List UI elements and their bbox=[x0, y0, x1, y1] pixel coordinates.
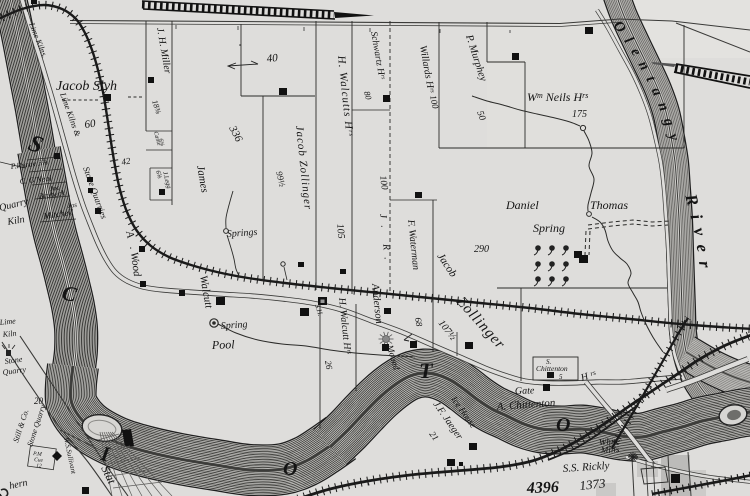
svg-text:12: 12 bbox=[36, 463, 42, 470]
svg-text:T: T bbox=[419, 358, 434, 383]
svg-text:Mills: Mills bbox=[600, 444, 620, 455]
svg-text:100: 100 bbox=[377, 175, 389, 191]
svg-text:Spring: Spring bbox=[533, 221, 565, 235]
svg-text:Spring: Spring bbox=[220, 319, 247, 332]
svg-text:Wm Neils Hrs: Wm Neils Hrs bbox=[527, 90, 588, 104]
svg-text:60: 60 bbox=[84, 117, 97, 130]
svg-text:40: 40 bbox=[266, 52, 279, 65]
svg-text:Springs: Springs bbox=[226, 227, 257, 240]
svg-text:105: 105 bbox=[334, 223, 347, 239]
svg-text:Daniel: Daniel bbox=[505, 198, 539, 212]
svg-text:Kiln: Kiln bbox=[1, 329, 17, 339]
svg-text:175: 175 bbox=[572, 109, 587, 120]
svg-text:5: 5 bbox=[559, 373, 563, 381]
svg-text:290: 290 bbox=[474, 244, 489, 255]
svg-text:O: O bbox=[283, 458, 297, 480]
svg-text:Gate: Gate bbox=[515, 385, 535, 397]
svg-text:Pool: Pool bbox=[211, 337, 236, 352]
svg-text:Thomas: Thomas bbox=[590, 198, 628, 212]
svg-text:Lime: Lime bbox=[0, 316, 17, 327]
svg-text:Chittenton: Chittenton bbox=[536, 364, 568, 373]
svg-text:4396: 4396 bbox=[526, 479, 560, 496]
svg-text:O: O bbox=[556, 414, 570, 436]
svg-text:1373: 1373 bbox=[579, 475, 607, 493]
